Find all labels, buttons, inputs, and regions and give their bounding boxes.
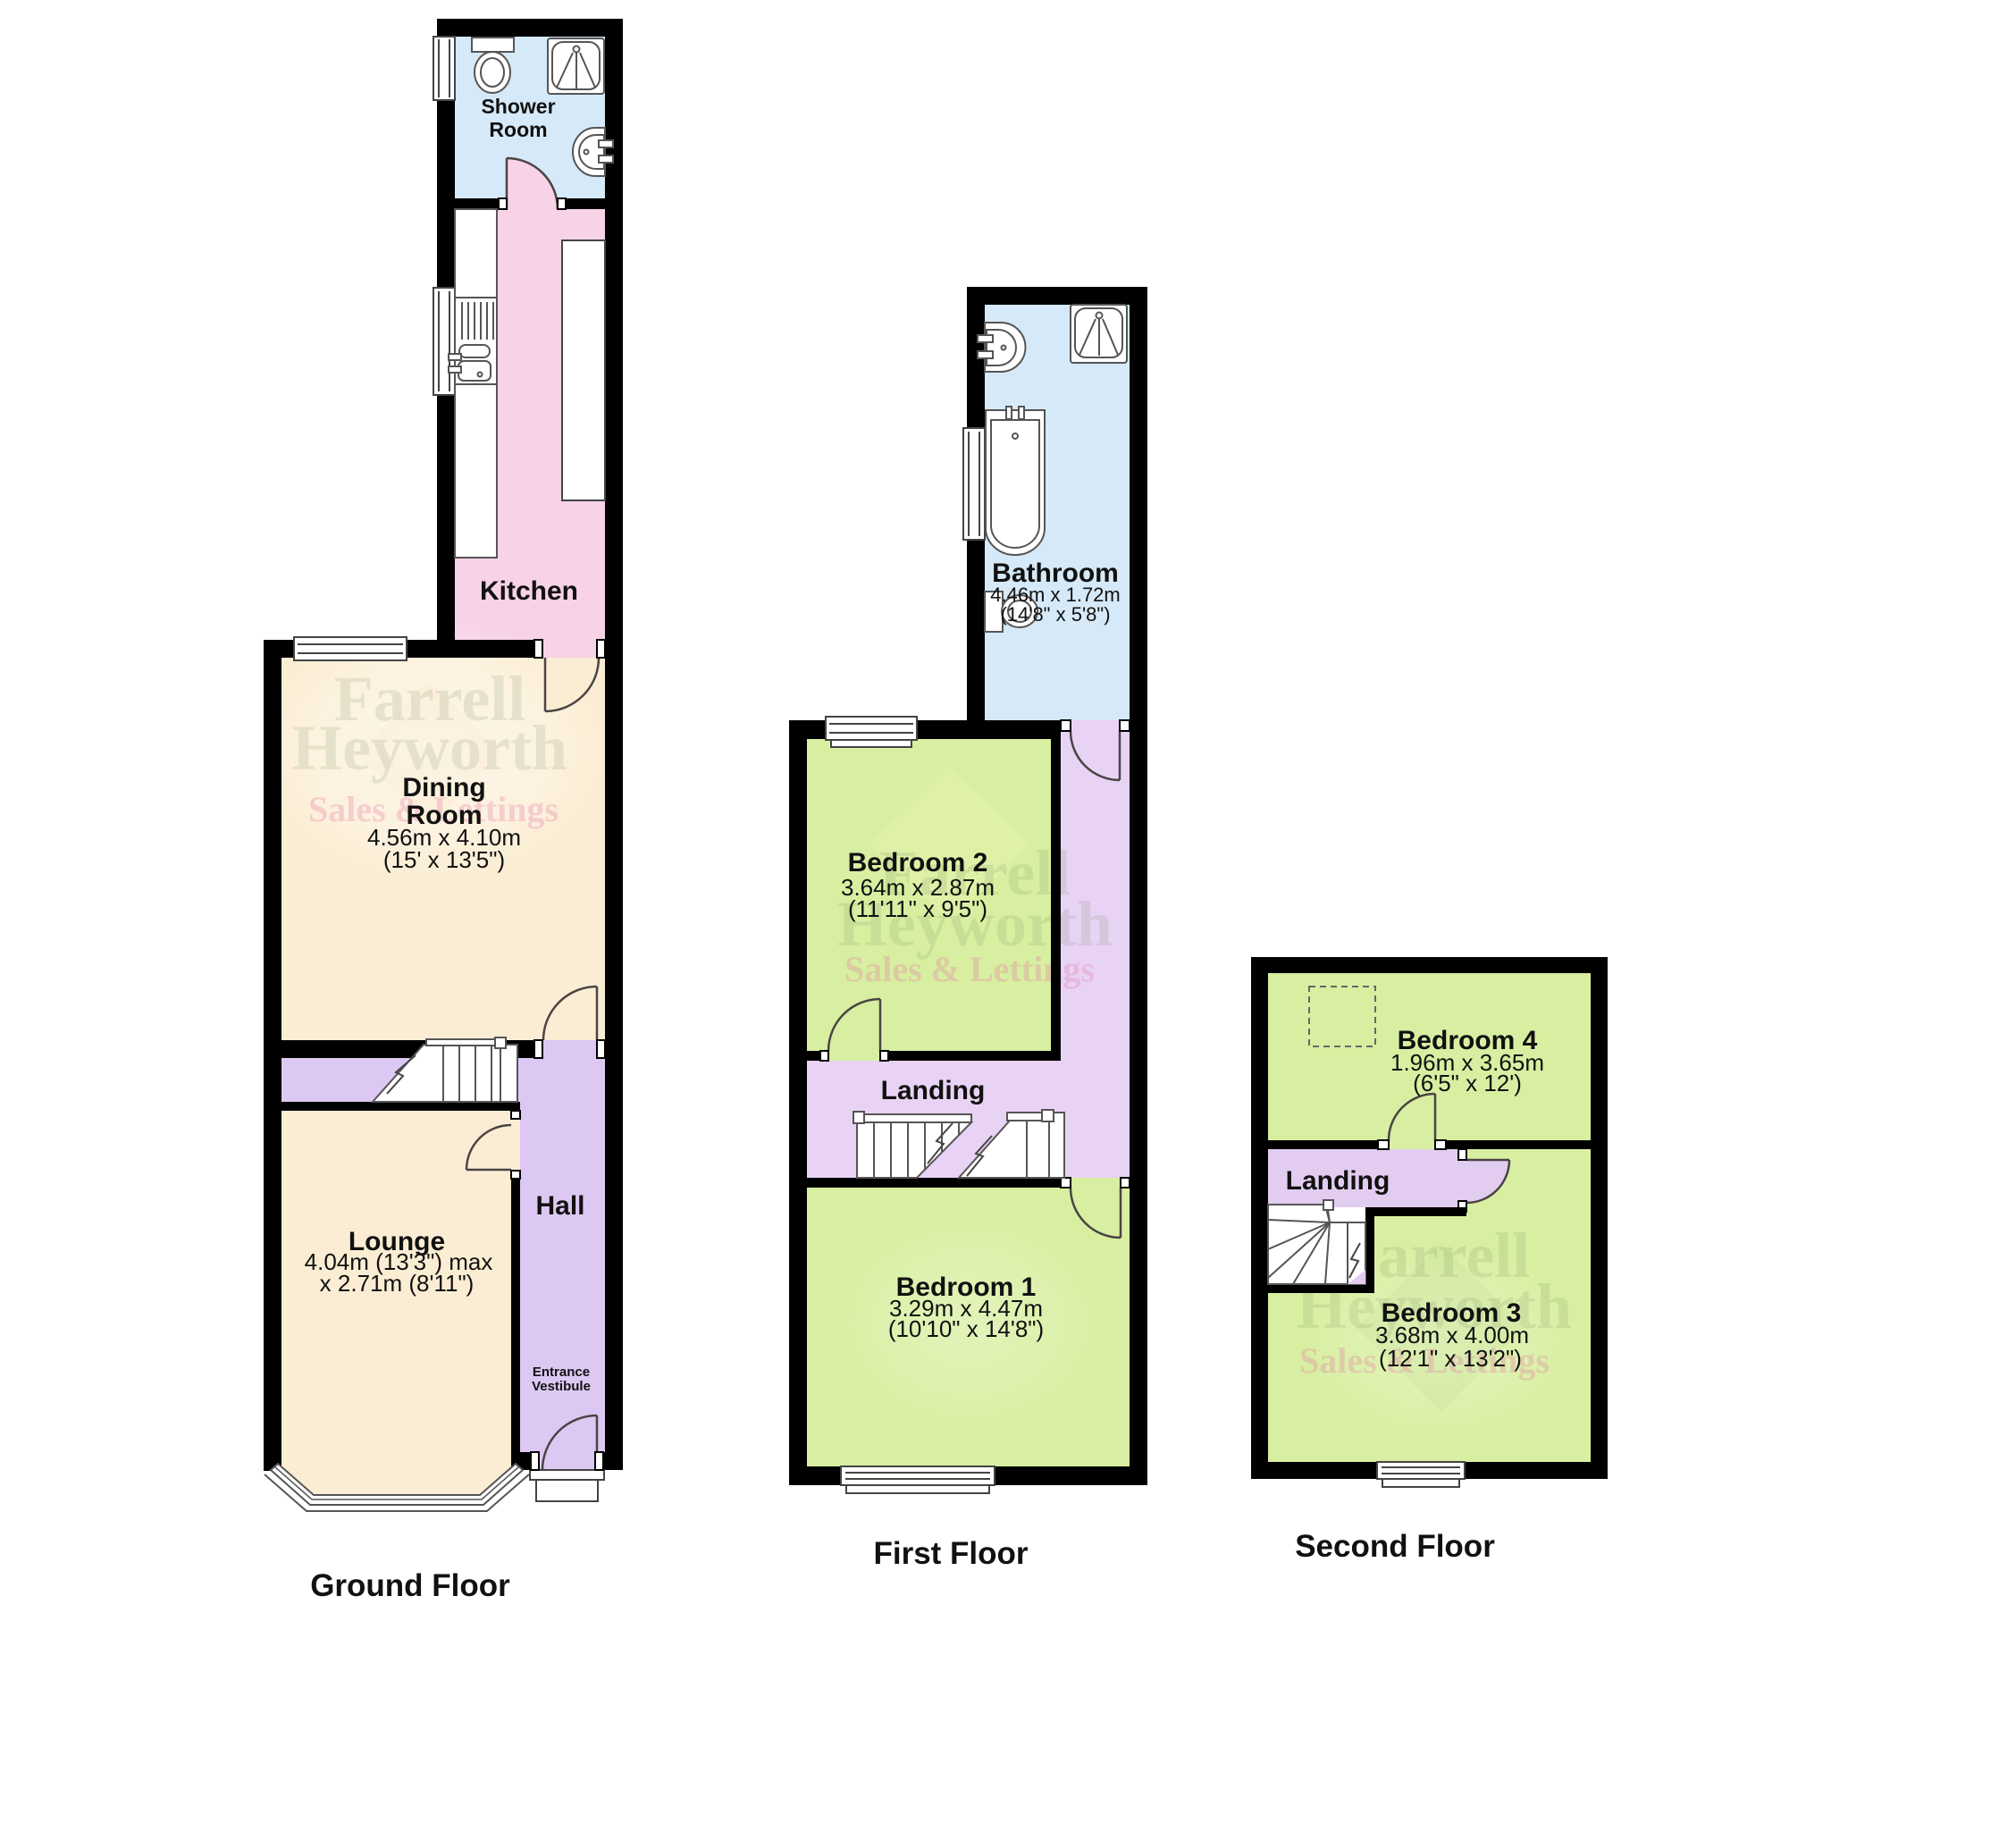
svg-text:(6'5" x 12'): (6'5" x 12') (1413, 1070, 1522, 1096)
svg-text:(15' x 13'5"): (15' x 13'5") (383, 846, 505, 873)
svg-text:Vestibule: Vestibule (532, 1379, 591, 1394)
svg-text:(14'8" x 5'8"): (14'8" x 5'8") (1000, 603, 1110, 626)
svg-text:Landing: Landing (1286, 1166, 1390, 1196)
svg-text:Kitchen: Kitchen (480, 576, 578, 606)
svg-text:Hall: Hall (535, 1191, 584, 1221)
svg-text:First Floor: First Floor (873, 1536, 1028, 1571)
svg-text:Shower: Shower (481, 95, 555, 118)
svg-text:x 2.71m (8'11"): x 2.71m (8'11") (320, 1270, 475, 1297)
svg-text:Dining: Dining (402, 773, 485, 802)
svg-text:Room: Room (489, 118, 547, 141)
svg-text:Ground Floor: Ground Floor (310, 1568, 510, 1603)
svg-text:Entrance: Entrance (533, 1365, 590, 1380)
svg-text:(10'10" x 14'8"): (10'10" x 14'8") (888, 1315, 1044, 1342)
svg-text:Second Floor: Second Floor (1295, 1529, 1495, 1564)
svg-text:(12'1" x 13'2"): (12'1" x 13'2") (1379, 1345, 1522, 1372)
svg-text:(11'11" x 9'5"): (11'11" x 9'5") (848, 895, 987, 922)
svg-text:Landing: Landing (881, 1076, 986, 1105)
